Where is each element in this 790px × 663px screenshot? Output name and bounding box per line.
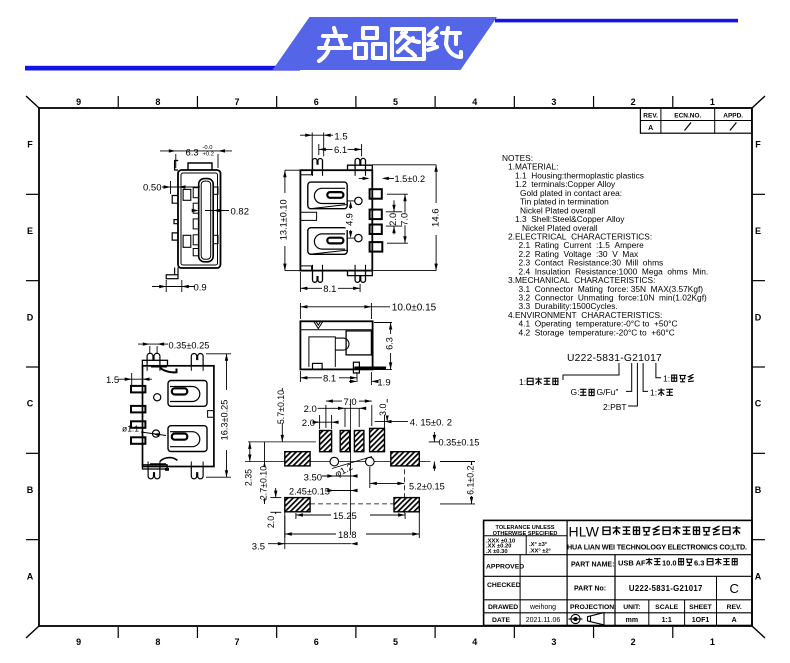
- svg-text:0.50: 0.50: [143, 183, 162, 194]
- svg-text:ECN.NO.: ECN.NO.: [674, 113, 701, 120]
- svg-text:2:PBT: 2:PBT: [603, 402, 627, 412]
- svg-text:U222-5831-G21017: U222-5831-G21017: [567, 353, 662, 364]
- svg-text:.XX° ±2°: .XX° ±2°: [529, 549, 552, 555]
- svg-text:4. 15±0. 2: 4. 15±0. 2: [410, 418, 452, 429]
- svg-text:SCALE: SCALE: [655, 604, 679, 611]
- svg-text:PART NAME:: PART NAME:: [571, 562, 614, 569]
- svg-text:1.5: 1.5: [334, 131, 347, 142]
- svg-text:2.7±0.10: 2.7±0.10: [258, 466, 268, 500]
- svg-text:14.6: 14.6: [430, 208, 441, 227]
- svg-text:7.0: 7.0: [344, 397, 357, 408]
- svg-text:F: F: [755, 140, 761, 150]
- svg-text:1.9: 1.9: [377, 377, 390, 388]
- svg-text:SHEET: SHEET: [689, 604, 713, 611]
- svg-text:-0.0: -0.0: [203, 145, 213, 151]
- svg-text:5.7±0.10: 5.7±0.10: [276, 390, 286, 424]
- svg-text:6.3: 6.3: [694, 559, 704, 568]
- svg-text:A: A: [648, 125, 653, 132]
- svg-text:3.0: 3.0: [378, 404, 388, 417]
- svg-text:2.45±0.15: 2.45±0.15: [289, 487, 330, 497]
- svg-text:1:: 1:: [519, 377, 526, 387]
- svg-text:2.0: 2.0: [388, 213, 398, 226]
- svg-text:1.5±0.2: 1.5±0.2: [395, 174, 426, 184]
- svg-text:APPROVED: APPROVED: [486, 564, 524, 571]
- svg-text:3: 3: [551, 97, 556, 107]
- svg-text:DRAWED: DRAWED: [488, 604, 518, 611]
- svg-text:4: 4: [472, 97, 477, 107]
- svg-text:6.1: 6.1: [334, 145, 347, 156]
- svg-text:6.3: 6.3: [384, 337, 394, 350]
- svg-text:2.0: 2.0: [266, 516, 276, 528]
- svg-text:5.2±0.15: 5.2±0.15: [409, 481, 445, 491]
- svg-text:1: 1: [710, 637, 715, 647]
- svg-text:6.1±0.2: 6.1±0.2: [465, 465, 475, 494]
- svg-text:10.0±0.15: 10.0±0.15: [392, 303, 437, 314]
- svg-text:REV.: REV.: [727, 604, 742, 611]
- svg-text:4.9: 4.9: [344, 213, 354, 226]
- svg-text:6.3: 6.3: [186, 147, 199, 158]
- svg-text:6: 6: [314, 97, 319, 107]
- svg-text:PART No:: PART No:: [574, 586, 606, 593]
- svg-text:5: 5: [393, 637, 398, 647]
- svg-text:1:: 1:: [650, 388, 657, 398]
- svg-text:2.35: 2.35: [244, 469, 254, 486]
- svg-text:ø1.1: ø1.1: [122, 424, 139, 434]
- svg-text:USB AF: USB AF: [618, 559, 646, 568]
- svg-text:E: E: [755, 226, 761, 236]
- svg-text:2: 2: [631, 97, 636, 107]
- svg-text:13.1±0.10: 13.1±0.10: [279, 199, 289, 240]
- svg-text:.X ±0.30: .X ±0.30: [486, 549, 508, 555]
- svg-text:4.2 Storage temperature:-20°: 4.2 Storage temperature:-20°C to +60°C: [519, 327, 675, 337]
- svg-text:weihong: weihong: [529, 604, 556, 611]
- svg-text:1: 1: [710, 97, 715, 107]
- svg-text:3: 3: [551, 637, 556, 647]
- svg-text:0.9: 0.9: [194, 283, 207, 294]
- svg-text:CHECKED: CHECKED: [487, 582, 521, 589]
- svg-text:A: A: [27, 571, 34, 581]
- svg-text:1OF1: 1OF1: [692, 617, 710, 624]
- svg-text:0.35±0.15: 0.35±0.15: [439, 437, 480, 447]
- svg-text:UNIT:: UNIT:: [623, 604, 640, 611]
- svg-text:2.0: 2.0: [304, 404, 317, 415]
- svg-text:5: 5: [393, 97, 398, 107]
- svg-text:15.25: 15.25: [333, 511, 357, 522]
- svg-text:1:: 1:: [663, 374, 670, 384]
- svg-text:C: C: [730, 581, 739, 596]
- svg-text:E: E: [27, 226, 33, 236]
- svg-text:7: 7: [235, 97, 240, 107]
- svg-text:8: 8: [155, 637, 160, 647]
- svg-text:9: 9: [76, 637, 81, 647]
- svg-text:A: A: [732, 617, 737, 624]
- svg-text:OTHERWISE SPECIFIED: OTHERWISE SPECIFIED: [493, 531, 558, 537]
- svg-text:B: B: [27, 485, 34, 495]
- svg-text:7: 7: [235, 637, 240, 647]
- svg-text:8: 8: [155, 97, 160, 107]
- svg-text:+0.2: +0.2: [203, 152, 214, 158]
- svg-text:0.35±0.25: 0.35±0.25: [169, 341, 210, 351]
- svg-text:PROJECTION:: PROJECTION:: [570, 604, 616, 611]
- svg-text:18.8: 18.8: [338, 530, 357, 541]
- svg-text:10.0: 10.0: [662, 559, 677, 568]
- svg-text:U222-5831-G21017: U222-5831-G21017: [629, 584, 703, 593]
- svg-text:HLW: HLW: [569, 524, 600, 540]
- svg-text:8.1: 8.1: [323, 374, 336, 385]
- svg-text:DATE: DATE: [492, 617, 510, 624]
- svg-text:1.5: 1.5: [106, 375, 119, 386]
- svg-text:HUA LIAN WEI TECHNOLOGY EL: HUA LIAN WEI TECHNOLOGY ELECTRONICS CO;L…: [567, 543, 747, 552]
- svg-text:3.50: 3.50: [304, 473, 323, 484]
- svg-text:1:1: 1:1: [662, 617, 672, 624]
- svg-text:mm: mm: [626, 617, 638, 624]
- svg-text:16.3±0.25: 16.3±0.25: [220, 400, 230, 441]
- svg-text:9: 9: [76, 97, 81, 107]
- svg-text:C: C: [27, 399, 34, 409]
- svg-text:REV.: REV.: [643, 113, 658, 120]
- svg-text:APPD.: APPD.: [723, 113, 743, 120]
- svg-text:.X° ±3°: .X° ±3°: [529, 542, 548, 548]
- svg-text:F: F: [27, 140, 33, 150]
- svg-text:A: A: [755, 571, 762, 581]
- svg-text:8.1: 8.1: [323, 284, 336, 295]
- svg-text:4: 4: [472, 637, 477, 647]
- svg-text:3.5: 3.5: [252, 542, 265, 553]
- svg-text:0.82: 0.82: [231, 207, 250, 218]
- svg-text:7.0: 7.0: [399, 213, 409, 226]
- svg-text:G:: G:: [571, 387, 580, 397]
- svg-text:2021.11.06: 2021.11.06: [526, 617, 561, 624]
- svg-text:D: D: [27, 312, 34, 322]
- svg-text:C: C: [755, 399, 762, 409]
- svg-text:2: 2: [631, 637, 636, 647]
- svg-text:G/Fu″: G/Fu″: [597, 387, 619, 397]
- svg-text:B: B: [755, 485, 762, 495]
- svg-text:6: 6: [314, 637, 319, 647]
- svg-text:D: D: [755, 312, 762, 322]
